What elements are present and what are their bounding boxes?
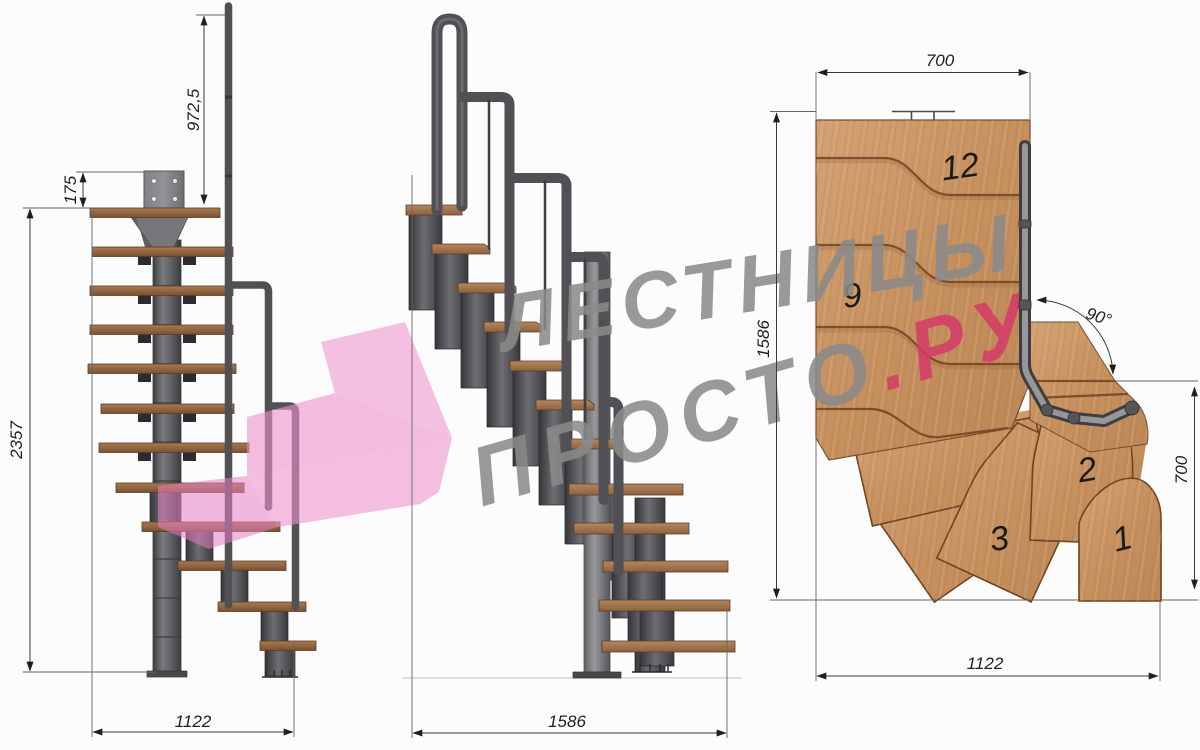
svg-text:1122: 1122	[967, 654, 1004, 673]
svg-text:12: 12	[939, 146, 982, 189]
svg-text:700: 700	[1172, 455, 1191, 484]
svg-text:1586: 1586	[548, 712, 586, 731]
svg-text:1122: 1122	[175, 712, 212, 731]
svg-text:972,5: 972,5	[184, 88, 203, 131]
svg-text:1586: 1586	[754, 320, 773, 358]
svg-text:175: 175	[61, 175, 80, 204]
svg-text:700: 700	[926, 51, 955, 70]
svg-text:2357: 2357	[7, 421, 26, 460]
